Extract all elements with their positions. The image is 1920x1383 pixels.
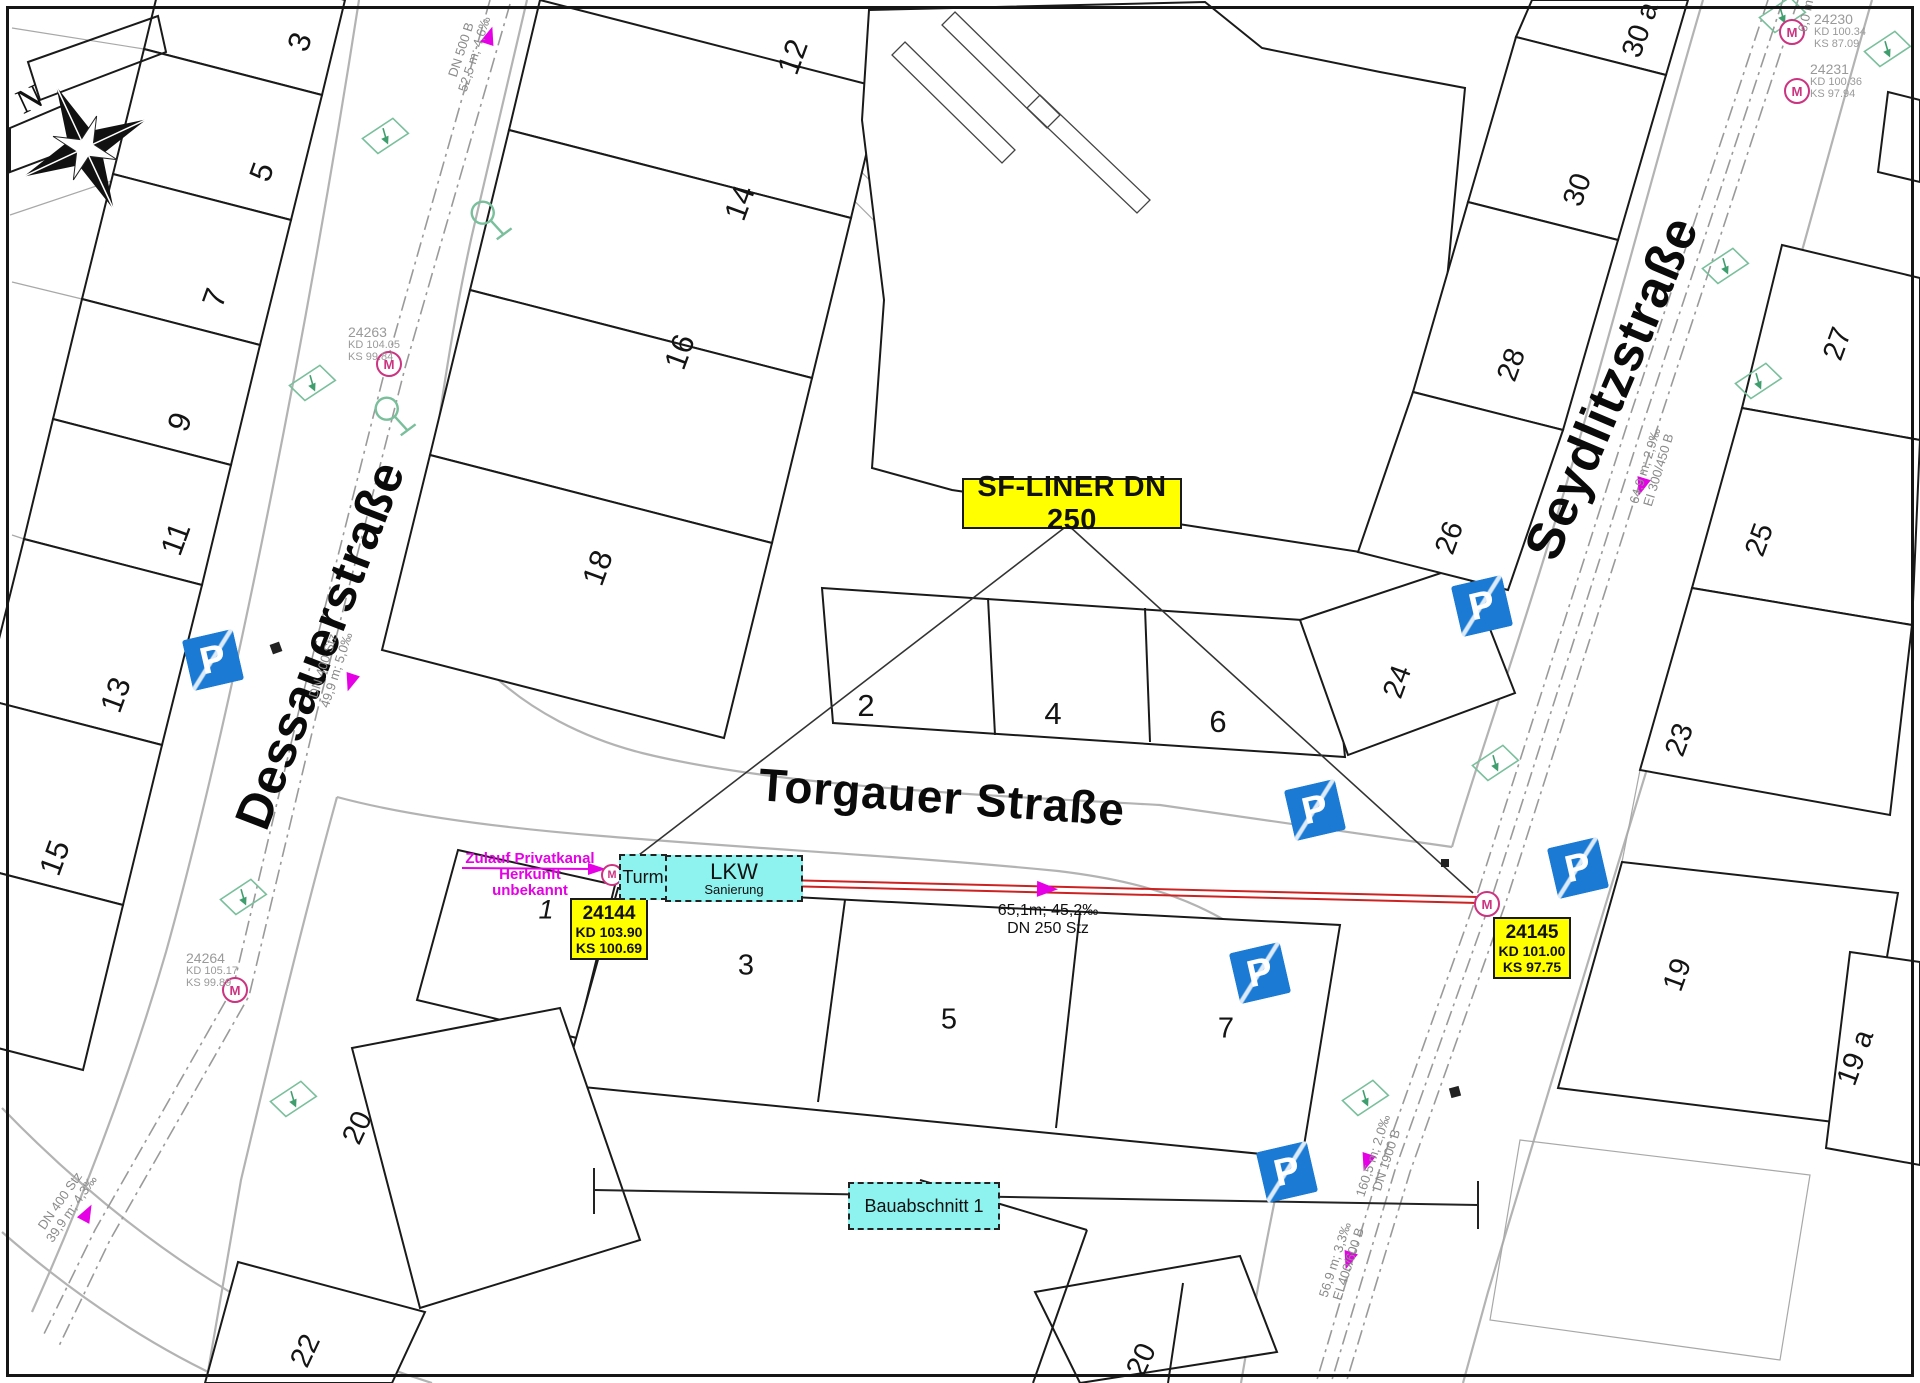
manhole-label: 24263KD 104.05KS 99.84 (348, 325, 400, 363)
house-number: 7 (1218, 1013, 1234, 1046)
lkw-box: LKWSanierung (665, 855, 803, 902)
shaft-24145-label: 24145KD 101.00KS 97.75 (1493, 917, 1571, 979)
segment-length-label: 65,1m; 45,2‰DN 250 Stz (978, 902, 1118, 938)
manhole-icon: M (1474, 891, 1500, 917)
house-number: 5 (941, 1004, 957, 1037)
house-number: 4 (1044, 696, 1061, 732)
sf-liner-label: SF-LINER DN 250 (962, 478, 1182, 529)
manhole-label: 24264KD 105.17KS 99.89 (186, 951, 238, 989)
house-number: 6 (1209, 704, 1226, 740)
manhole-label: 24231KD 100.36KS 97.94 (1810, 62, 1862, 100)
private-inflow-note: Zulauf PrivatkanalHerkunft unbekannt (460, 851, 600, 899)
manhole-label: 24230KD 100.34KS 87.09 (1814, 12, 1866, 50)
turm-box: Turm (619, 854, 667, 900)
dimension-line (594, 1168, 1478, 1229)
site-plan: N DessauerstraßeTorgauer StraßeSeydlitzs… (0, 0, 1920, 1383)
shaft-24144-label: 24144KD 103.90KS 100.69 (570, 898, 648, 960)
house-number: 2 (857, 688, 874, 724)
house-number: 3 (738, 950, 754, 983)
bauabschnitt-box: Bauabschnitt 1 (848, 1182, 1000, 1230)
manhole-icon: M (1784, 78, 1810, 104)
house-number: 1 (538, 895, 553, 926)
